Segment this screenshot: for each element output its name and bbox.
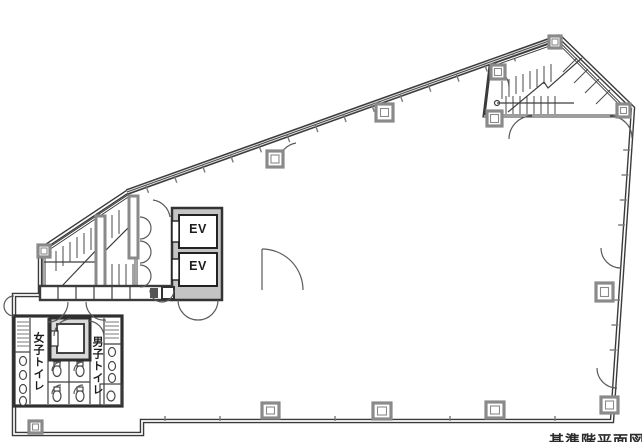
column bbox=[491, 65, 505, 79]
column bbox=[373, 403, 391, 419]
column bbox=[38, 245, 50, 257]
mens-toilet-label: 男子トイレ bbox=[91, 336, 102, 406]
column bbox=[596, 283, 613, 301]
column bbox=[601, 397, 618, 413]
column bbox=[487, 111, 502, 126]
elevator-door-2 bbox=[172, 259, 179, 280]
floorplan-page: EV EV 女子トイレ 男子トイレ 基準階平面図 bbox=[0, 0, 642, 442]
service-shaft-band bbox=[40, 286, 174, 300]
column bbox=[617, 104, 630, 117]
toilet-block bbox=[14, 316, 122, 406]
column bbox=[376, 104, 393, 121]
column bbox=[549, 36, 561, 48]
elevator-label-1: EV bbox=[179, 222, 217, 236]
column bbox=[29, 421, 42, 433]
column bbox=[267, 151, 283, 167]
column bbox=[486, 402, 504, 418]
elevator-label-2: EV bbox=[179, 259, 217, 273]
pipe-shaft-core bbox=[50, 318, 90, 360]
column bbox=[262, 403, 279, 418]
womens-toilet-label: 女子トイレ bbox=[32, 332, 43, 404]
caption-text: 基準階平面図 bbox=[549, 430, 642, 442]
elevator-door-1 bbox=[172, 221, 179, 242]
